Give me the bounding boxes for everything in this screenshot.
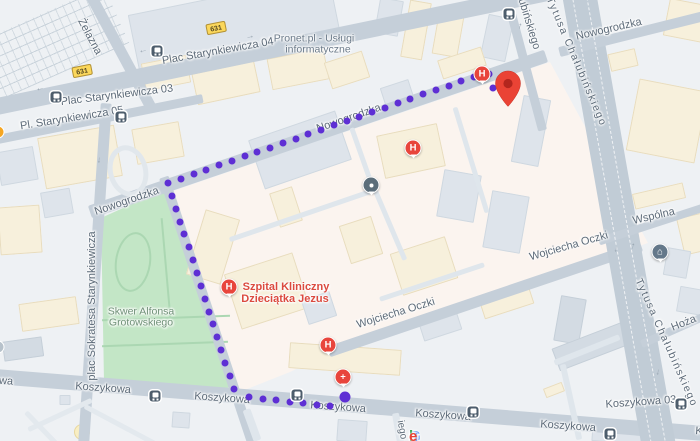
route-dot <box>193 270 200 277</box>
route-dot <box>326 403 333 410</box>
marker-glyph: H <box>410 143 417 153</box>
route-dot <box>330 122 337 129</box>
bank-marker-icon[interactable]: ⌂ <box>652 244 669 261</box>
road <box>84 404 157 441</box>
route-dot <box>394 100 401 107</box>
destination-pin[interactable] <box>494 70 522 113</box>
pharmacy-marker-icon[interactable]: + <box>335 369 352 386</box>
route-dot <box>445 82 452 89</box>
building <box>0 205 43 256</box>
street-label: informatyczne <box>285 44 350 55</box>
map-canvas[interactable]: 631631←←→↑↓↑↓↓ ŻelaznaPlac Starynkiewicz… <box>0 0 700 441</box>
marker-glyph: + <box>340 372 346 382</box>
generic-poi-marker-icon[interactable] <box>363 177 380 194</box>
building <box>626 78 700 163</box>
bus-stop-icon[interactable] <box>116 112 127 123</box>
bus-stop-icon[interactable] <box>152 46 163 57</box>
route-dot <box>165 180 172 187</box>
route-dot <box>356 113 363 120</box>
route-dot <box>190 171 197 178</box>
street-label: Koszykowa <box>194 391 250 406</box>
route-dot <box>201 295 208 302</box>
route-dot <box>458 78 465 85</box>
route-dot <box>197 282 204 289</box>
route-dot <box>279 140 286 147</box>
street-label: Grotowskiego <box>109 317 173 328</box>
google-logo-letter: e <box>409 428 418 441</box>
route-dot <box>177 175 184 182</box>
building <box>171 411 190 428</box>
route-dot <box>381 104 388 111</box>
route-endpoint-dot <box>340 392 351 403</box>
route-dot <box>218 347 225 354</box>
route-dot <box>292 135 299 142</box>
street-label: iego <box>394 420 408 440</box>
marker-glyph: ⌂ <box>657 247 663 257</box>
route-dot <box>259 395 266 402</box>
street-label: Koszykowa <box>415 408 471 423</box>
street-label: K <box>695 426 700 438</box>
route-dot <box>206 308 213 315</box>
hospital-marker-icon[interactable]: H <box>474 66 491 83</box>
road-direction-arrow: ← <box>35 83 46 94</box>
building <box>0 146 39 186</box>
road-direction-arrow: ← <box>138 45 149 56</box>
route-dot <box>254 149 261 156</box>
bus-stop-icon[interactable] <box>292 390 303 401</box>
building <box>60 395 71 405</box>
destination-pin-icon <box>494 70 522 108</box>
marker-glyph: H <box>226 282 233 292</box>
road-badge: 631 <box>71 64 92 79</box>
route-dot <box>222 360 229 367</box>
route-dot <box>226 372 233 379</box>
bus-stop-icon[interactable] <box>605 429 616 440</box>
route-dot <box>185 244 192 251</box>
bus-stop-icon[interactable] <box>468 407 479 418</box>
route-dot <box>203 166 210 173</box>
building <box>543 382 565 399</box>
route-dot <box>216 162 223 169</box>
route-dot <box>369 109 376 116</box>
route-dot <box>343 118 350 125</box>
building <box>607 48 638 72</box>
building <box>2 336 44 361</box>
route-dot <box>420 91 427 98</box>
street-label: Koszykowa <box>540 419 596 434</box>
hospital-marker-icon[interactable]: H <box>221 279 238 296</box>
route-dot <box>210 321 217 328</box>
hospital-marker-icon[interactable]: H <box>320 337 337 354</box>
route-dot <box>214 334 221 341</box>
bus-stop-icon[interactable] <box>150 391 161 402</box>
route-dot <box>173 205 180 212</box>
route-dot <box>407 95 414 102</box>
route-dot <box>313 401 320 408</box>
route-dot <box>189 257 196 264</box>
marker-glyph: H <box>325 340 332 350</box>
route-dot <box>241 153 248 160</box>
building <box>324 51 371 90</box>
route-dot <box>305 131 312 138</box>
street-label: Hoża <box>670 314 698 334</box>
route-dot <box>181 231 188 238</box>
marker-glyph: H <box>479 69 486 79</box>
route-dot <box>432 87 439 94</box>
route-dot <box>318 126 325 133</box>
route-dot <box>169 192 176 199</box>
bus-stop-icon[interactable] <box>676 399 687 410</box>
street-label: Szpital Kliniczny <box>243 282 330 294</box>
route-dot <box>273 397 280 404</box>
hospital-marker-icon[interactable]: H <box>405 140 422 157</box>
street-label: wa <box>0 376 13 388</box>
route-dot <box>300 400 307 407</box>
street-label: Dzieciątka Jezus <box>241 294 328 306</box>
bus-stop-icon[interactable] <box>51 92 62 103</box>
road-direction-arrow: ↓ <box>96 155 101 164</box>
building <box>18 296 79 332</box>
building <box>336 419 367 441</box>
route-dot <box>230 385 237 392</box>
route-dot <box>267 144 274 151</box>
street-label: plac Sokratesa Starynkiewicza <box>87 231 99 380</box>
building <box>632 182 686 209</box>
route-dot <box>246 394 253 401</box>
bus-stop-icon[interactable] <box>504 9 515 20</box>
building <box>40 188 74 219</box>
route-dot <box>177 218 184 225</box>
route-dot <box>228 157 235 164</box>
building <box>676 286 700 316</box>
